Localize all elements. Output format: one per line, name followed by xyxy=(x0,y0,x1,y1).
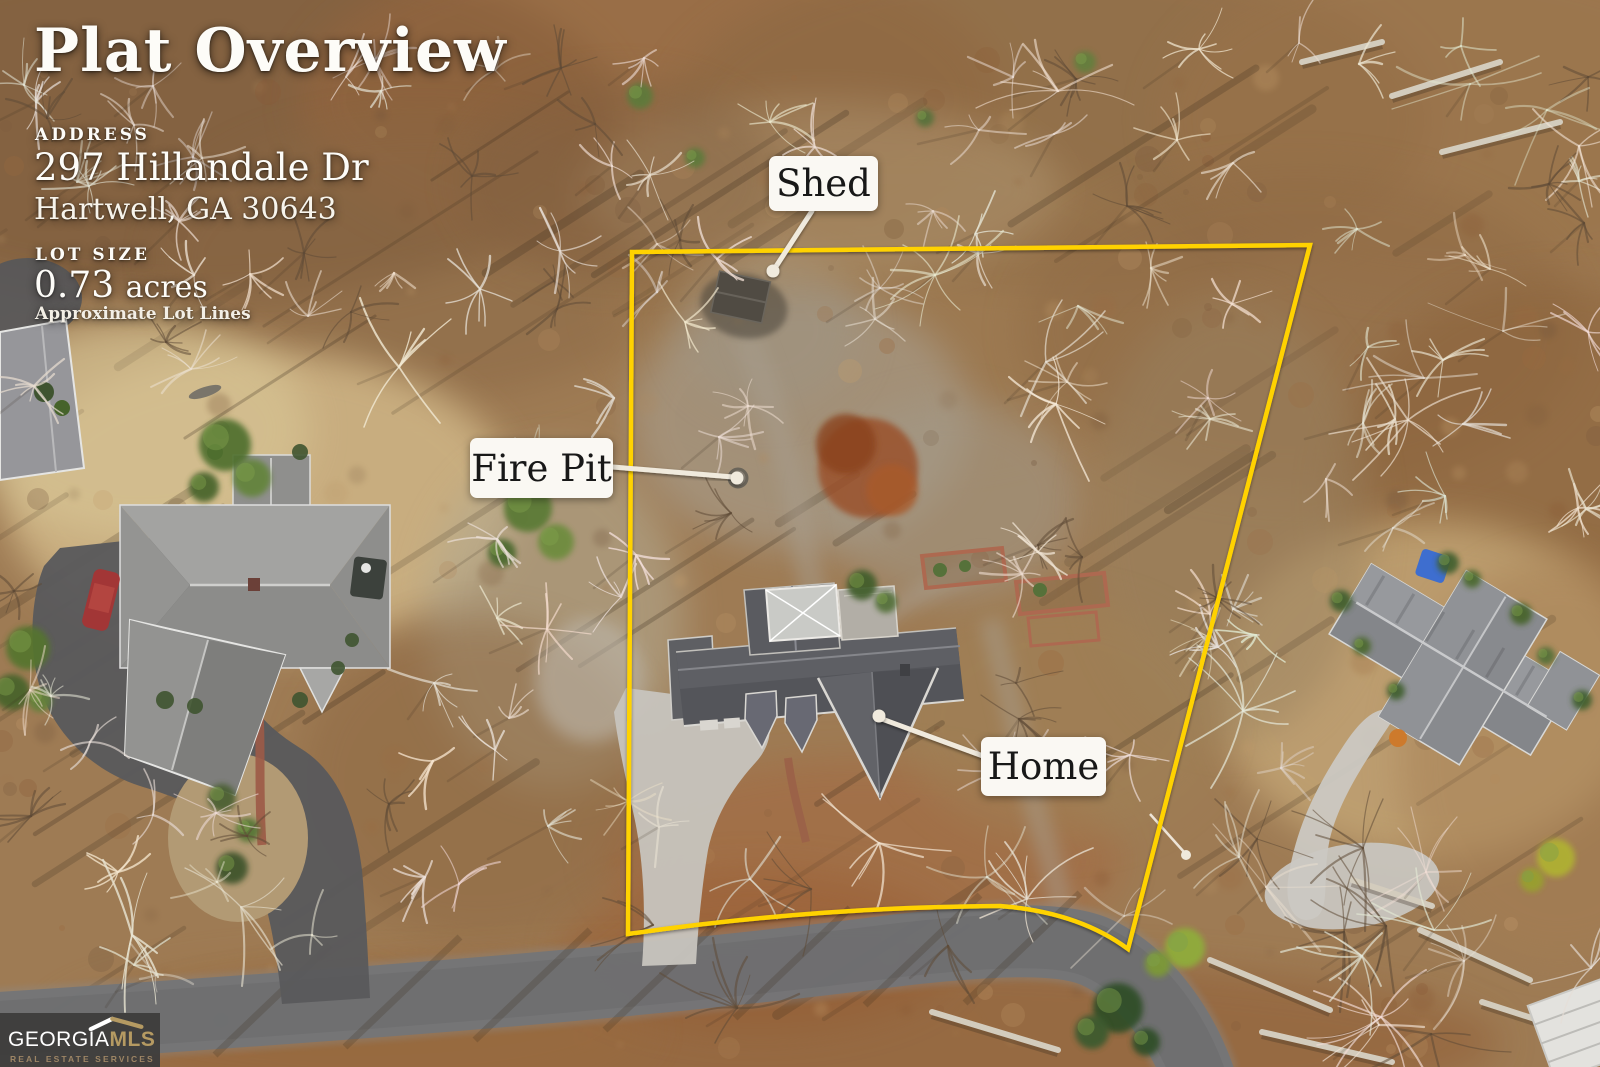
georgia-mls-logo: GEORGIAMLS REAL ESTATE SERVICES xyxy=(0,1013,160,1067)
lot-size-unit: acres xyxy=(126,270,208,305)
lot-size-number: 0.73 xyxy=(34,265,114,306)
map-label-fire-pit-text: Fire Pit xyxy=(471,447,611,490)
map-label-home: Home xyxy=(981,737,1106,796)
leader-dot-home xyxy=(873,710,886,723)
leader-dot-fire-pit xyxy=(731,472,744,485)
logo-tagline: REAL ESTATE SERVICES xyxy=(10,1054,155,1064)
plat-boundary-line xyxy=(628,245,1310,949)
address-line2: Hartwell, GA 30643 xyxy=(34,192,337,227)
logo-mls-text: MLS xyxy=(110,1028,156,1051)
map-label-shed-text: Shed xyxy=(776,162,871,205)
plat-overview-image: Shed Fire Pit Home Plat Overview ADDRESS… xyxy=(0,0,1600,1067)
address-label: ADDRESS xyxy=(35,125,150,145)
page-title: Plat Overview xyxy=(34,16,507,86)
logo-georgia-text: GEORGIA xyxy=(8,1028,110,1051)
logo-brand: GEORGIAMLS xyxy=(8,1028,155,1052)
map-label-fire-pit: Fire Pit xyxy=(470,438,613,498)
lot-size-label: LOT SIZE xyxy=(35,245,150,265)
map-label-shed: Shed xyxy=(769,156,878,211)
lot-lines-note: Approximate Lot Lines xyxy=(35,304,251,324)
map-label-home-text: Home xyxy=(988,745,1100,788)
leader-dot-shed xyxy=(767,265,780,278)
address-line1: 297 Hillandale Dr xyxy=(34,146,369,189)
lot-size-value: 0.73 acres xyxy=(34,265,208,306)
leader-line-shed xyxy=(775,211,812,268)
leader-line-home xyxy=(882,719,983,756)
